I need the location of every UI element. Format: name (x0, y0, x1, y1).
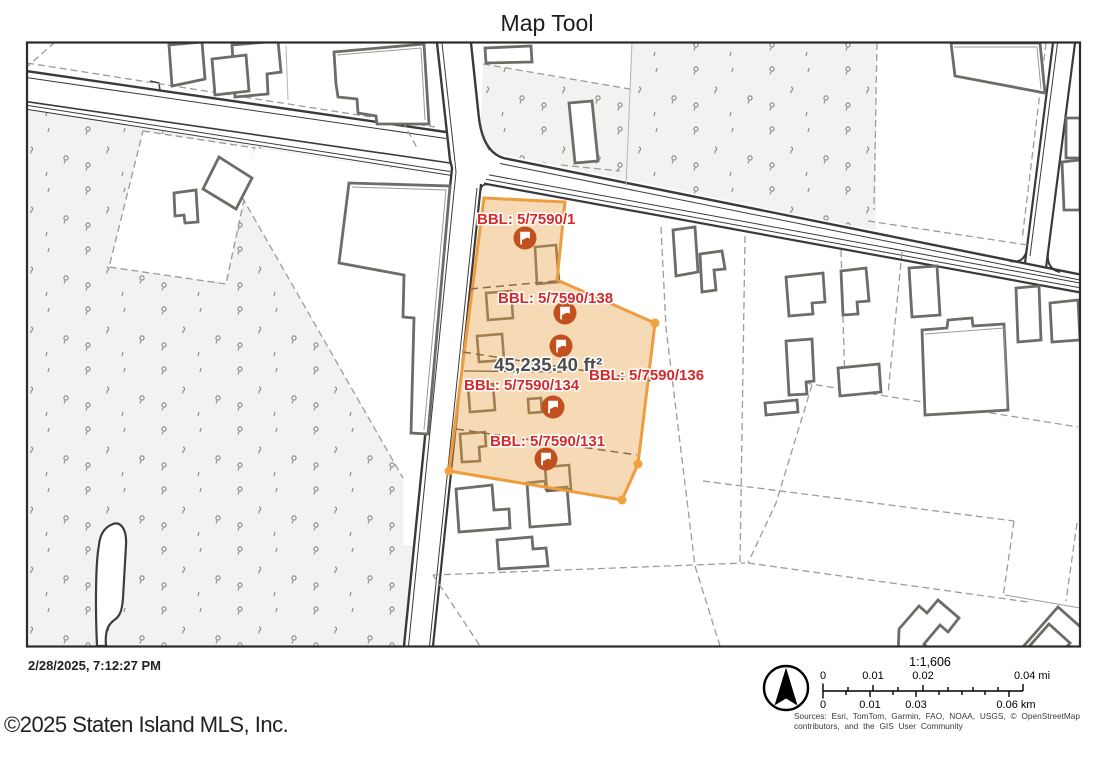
svg-text:0.01: 0.01 (862, 670, 883, 682)
svg-text:contributors, and the GIS User: contributors, and the GIS User Community (794, 721, 964, 731)
svg-text:©2025 Staten Island MLS, Inc.: ©2025 Staten Island MLS, Inc. (4, 712, 288, 737)
svg-text:BBL: 5/7590/1: BBL: 5/7590/1 (477, 211, 575, 228)
svg-text:2/28/2025, 7:12:27 PM: 2/28/2025, 7:12:27 PM (28, 658, 161, 673)
svg-text:BBL: 5/7590/138: BBL: 5/7590/138 (498, 290, 613, 307)
svg-text:1:1,606: 1:1,606 (909, 655, 951, 669)
svg-text:0.01: 0.01 (859, 699, 880, 711)
svg-text:0.02: 0.02 (912, 670, 933, 682)
svg-text:0.06 km: 0.06 km (996, 699, 1035, 711)
svg-text:0.04 mi: 0.04 mi (1014, 670, 1050, 682)
svg-text:BBL: 5/7590/136: BBL: 5/7590/136 (589, 367, 704, 384)
svg-text:45,235.40 ft²: 45,235.40 ft² (494, 354, 603, 375)
svg-text:Map Tool: Map Tool (501, 10, 594, 36)
svg-text:0.03: 0.03 (905, 699, 926, 711)
svg-text:BBL: 5/7590/131: BBL: 5/7590/131 (490, 433, 605, 450)
svg-text:0: 0 (820, 699, 826, 711)
svg-text:BBL: 5/7590/134: BBL: 5/7590/134 (464, 377, 580, 394)
svg-text:0: 0 (820, 670, 826, 682)
svg-text:Sources: Esri, TomTom, Garmin,: Sources: Esri, TomTom, Garmin, FAO, NOAA… (794, 711, 1080, 721)
